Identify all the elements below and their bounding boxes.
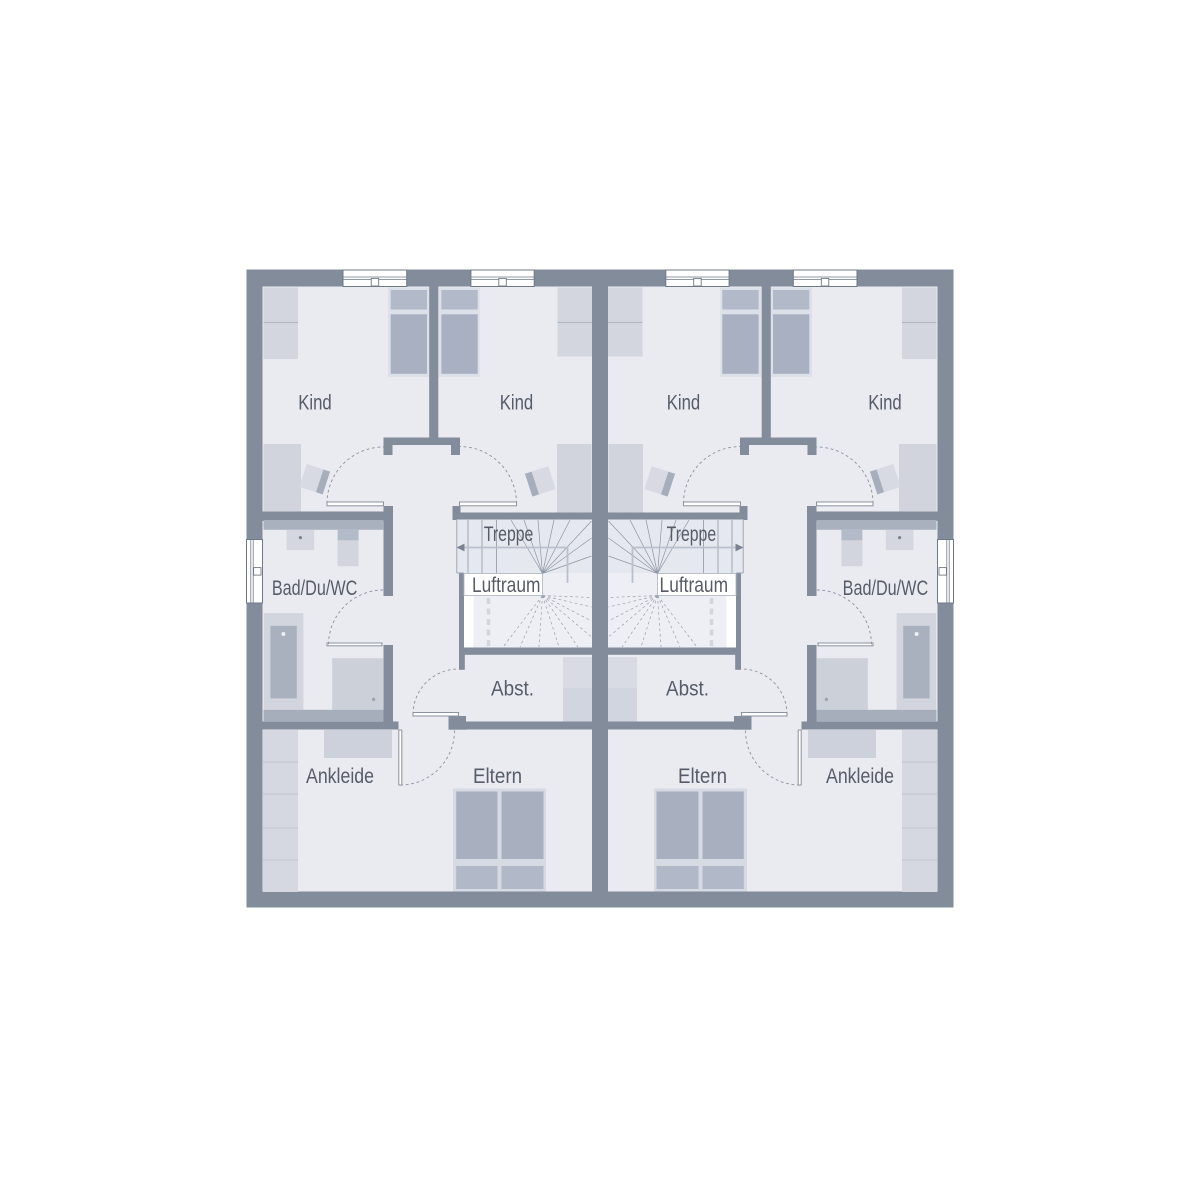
svg-text:Kind: Kind <box>500 390 534 414</box>
svg-text:Abst.: Abst. <box>666 677 709 701</box>
svg-text:Abst.: Abst. <box>491 677 534 701</box>
svg-text:Eltern: Eltern <box>473 764 522 788</box>
svg-text:Luftraum: Luftraum <box>660 573 729 597</box>
svg-text:Ankleide: Ankleide <box>306 764 374 788</box>
svg-text:Kind: Kind <box>868 390 902 414</box>
svg-text:Ankleide: Ankleide <box>826 764 894 788</box>
svg-text:Treppe: Treppe <box>484 522 534 546</box>
svg-text:Bad/Du/WC: Bad/Du/WC <box>843 576 929 600</box>
svg-text:Bad/Du/WC: Bad/Du/WC <box>272 576 358 600</box>
svg-text:Kind: Kind <box>667 390 701 414</box>
svg-text:Luftraum: Luftraum <box>472 573 541 597</box>
svg-text:Eltern: Eltern <box>678 764 727 788</box>
svg-text:Treppe: Treppe <box>667 522 717 546</box>
svg-text:Kind: Kind <box>298 390 332 414</box>
